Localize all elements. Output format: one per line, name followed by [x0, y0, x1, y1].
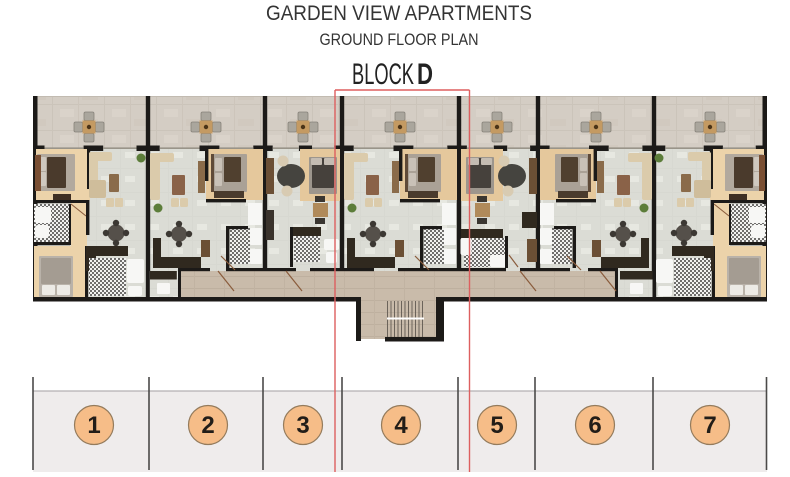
svg-text:7: 7 — [703, 412, 716, 439]
svg-text:1: 1 — [87, 412, 100, 439]
svg-text:4: 4 — [394, 412, 408, 439]
svg-text:6: 6 — [588, 412, 601, 439]
svg-text:5: 5 — [490, 412, 503, 439]
svg-text:3: 3 — [296, 412, 309, 439]
svg-text:2: 2 — [201, 412, 214, 439]
svg-text:GROUND FLOOR PLAN: GROUND FLOOR PLAN — [320, 30, 479, 49]
svg-text:BLOCK: BLOCK — [352, 58, 414, 91]
svg-text:GARDEN VIEW APARTMENTS: GARDEN VIEW APARTMENTS — [266, 1, 532, 25]
svg-text:D: D — [417, 58, 433, 91]
